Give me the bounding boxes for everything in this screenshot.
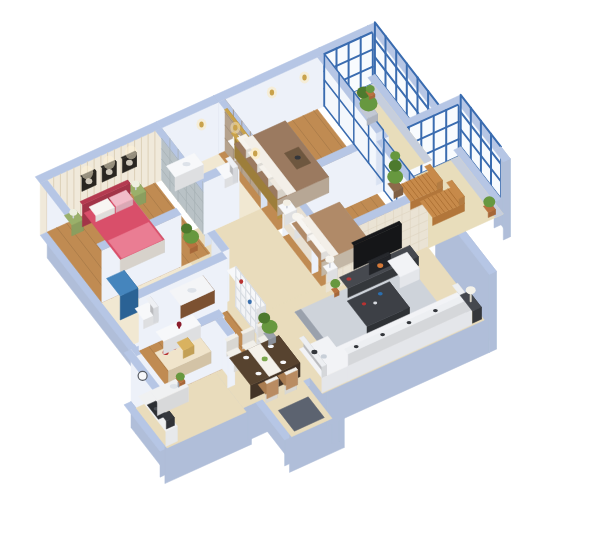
wall-sconce	[302, 75, 306, 81]
wall-sconce	[199, 121, 203, 127]
kids-lamp-shade	[69, 209, 77, 216]
place-setting	[243, 356, 249, 360]
floor-lamp-shade	[466, 286, 476, 294]
ceiling-glow	[103, 155, 115, 169]
picture-art	[126, 160, 133, 166]
potted-plant	[258, 313, 270, 324]
tall-plant	[390, 151, 400, 160]
picture-art	[106, 169, 113, 175]
potted-plant	[330, 279, 340, 288]
place-setting	[280, 361, 286, 365]
throw-pillow	[311, 350, 317, 354]
ceiling-glow	[125, 145, 137, 159]
kitchen-sink	[170, 384, 178, 389]
place-setting	[256, 372, 262, 376]
seat-cushion	[433, 309, 438, 312]
seat-cushion	[354, 345, 359, 348]
seat-cushion	[380, 333, 385, 336]
desk-vase	[177, 322, 182, 328]
throw-pillow	[321, 354, 327, 358]
floorplan-3d-render	[0, 0, 600, 550]
shelf-decor	[239, 279, 243, 284]
tray-decor	[295, 155, 301, 159]
tall-plant	[389, 160, 402, 172]
table-decor	[378, 292, 383, 296]
wall-sconce	[270, 89, 274, 95]
second-lamp-shade	[325, 256, 334, 263]
table-decor	[373, 302, 377, 305]
master-lamp-shade	[283, 200, 291, 206]
table-decor	[362, 302, 366, 305]
ensuite-basin	[183, 162, 191, 166]
balcony-plant	[366, 85, 375, 93]
fireplace-fire	[377, 263, 383, 268]
wall-clock	[138, 371, 147, 380]
bath-basin	[187, 288, 196, 293]
decor-bowl	[346, 277, 351, 281]
potted-plant	[181, 224, 192, 234]
kitchen-plant	[176, 373, 185, 381]
wall-sconce	[253, 150, 257, 156]
floorplan-canvas	[0, 0, 600, 550]
centerpiece	[262, 357, 268, 362]
seat-cushion	[407, 321, 412, 324]
wall-sconce	[233, 125, 237, 131]
tall-plant	[387, 170, 403, 184]
balcony-plant	[483, 196, 495, 207]
kids-lamp-shade	[132, 181, 140, 188]
ceiling-glow	[81, 165, 93, 179]
shelf-decor	[248, 299, 252, 304]
